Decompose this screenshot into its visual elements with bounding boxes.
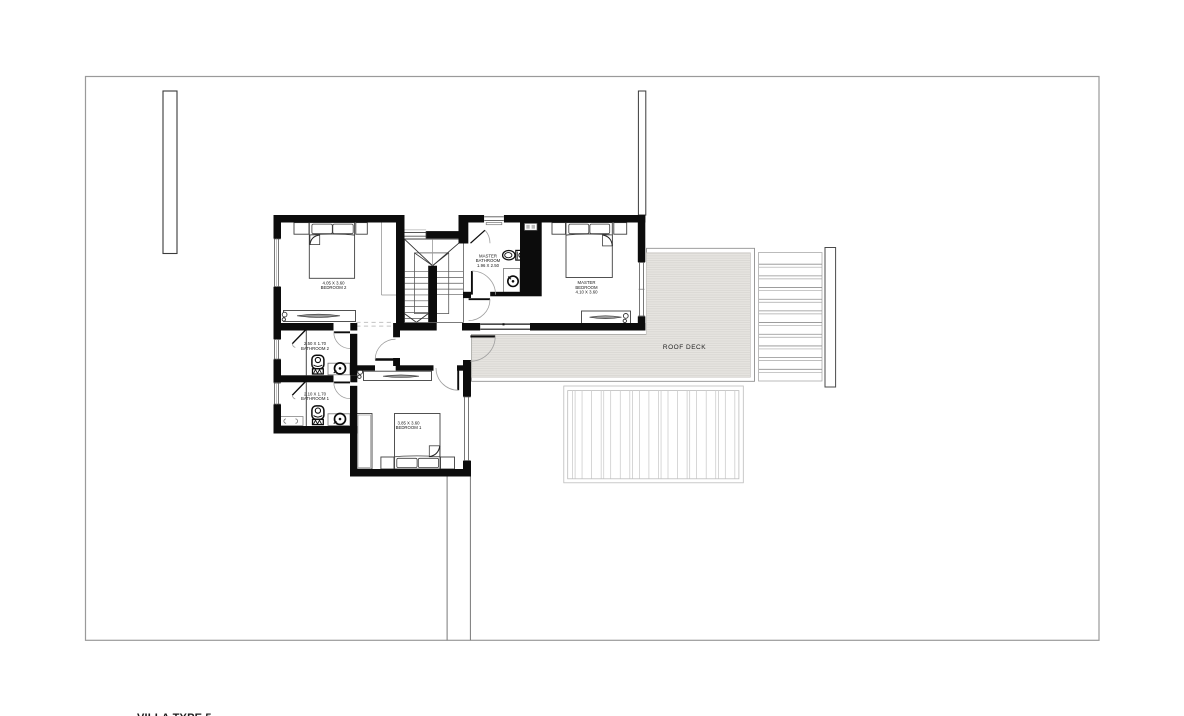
svg-text:BEDROOM 2: BEDROOM 2 [321,285,347,290]
svg-text:BEDROOM 1: BEDROOM 1 [396,425,422,430]
svg-text:4.10 X 3.60: 4.10 X 3.60 [576,290,599,295]
svg-text:1.96 X 2.50: 1.96 X 2.50 [477,263,500,268]
svg-text:BATHROOM 2: BATHROOM 2 [301,346,330,351]
svg-text:BATHROOM 1: BATHROOM 1 [301,396,330,401]
svg-text:ROOF DECK: ROOF DECK [663,344,706,351]
